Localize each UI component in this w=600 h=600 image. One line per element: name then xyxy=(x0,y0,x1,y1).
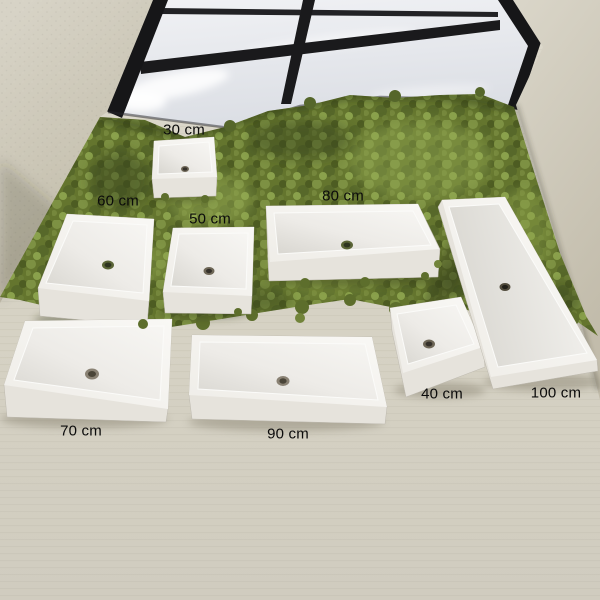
size-label-40cm: 40 cm xyxy=(421,387,463,402)
basin-inner xyxy=(171,233,248,289)
size-label-80cm: 80 cm xyxy=(322,189,364,204)
basin-30cm xyxy=(152,137,217,198)
size-label-90cm: 90 cm xyxy=(267,427,309,442)
size-label-30cm: 30 cm xyxy=(163,123,205,138)
product-photo: 30 cm 60 cm 50 cm 80 cm 40 cm 100 cm 70 … xyxy=(0,0,600,600)
size-label-100cm: 100 cm xyxy=(531,386,581,401)
scene-illustration xyxy=(0,0,600,600)
basin-50cm xyxy=(163,227,254,314)
size-label-70cm: 70 cm xyxy=(60,424,102,439)
basin-80cm xyxy=(266,204,440,281)
size-label-50cm: 50 cm xyxy=(189,212,231,227)
size-label-60cm: 60 cm xyxy=(97,194,139,209)
basin-70cm xyxy=(4,319,172,422)
basin-90cm xyxy=(189,335,387,424)
